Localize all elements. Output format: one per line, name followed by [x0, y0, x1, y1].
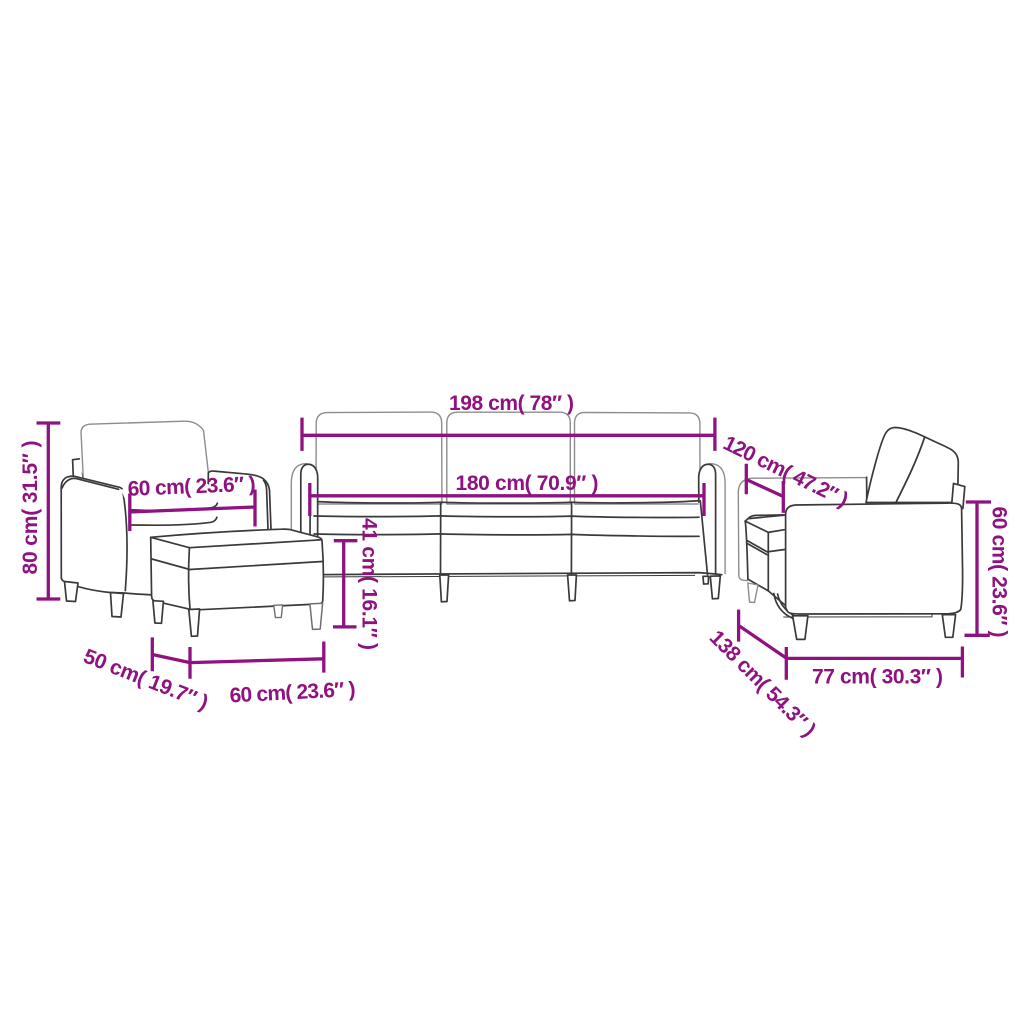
- svg-text:198 cm( 78″ ): 198 cm( 78″ ): [449, 392, 574, 415]
- svg-text:80 cm( 31.5″ ): 80 cm( 31.5″ ): [19, 441, 42, 575]
- svg-text:41 cm( 16.1″ ): 41 cm( 16.1″ ): [358, 518, 381, 650]
- svg-text:60 cm( 23.6″ ): 60 cm( 23.6″ ): [988, 507, 1011, 638]
- svg-text:180 cm( 70.9″ ): 180 cm( 70.9″ ): [456, 472, 599, 495]
- svg-text:77 cm( 30.3″ ): 77 cm( 30.3″ ): [812, 665, 943, 688]
